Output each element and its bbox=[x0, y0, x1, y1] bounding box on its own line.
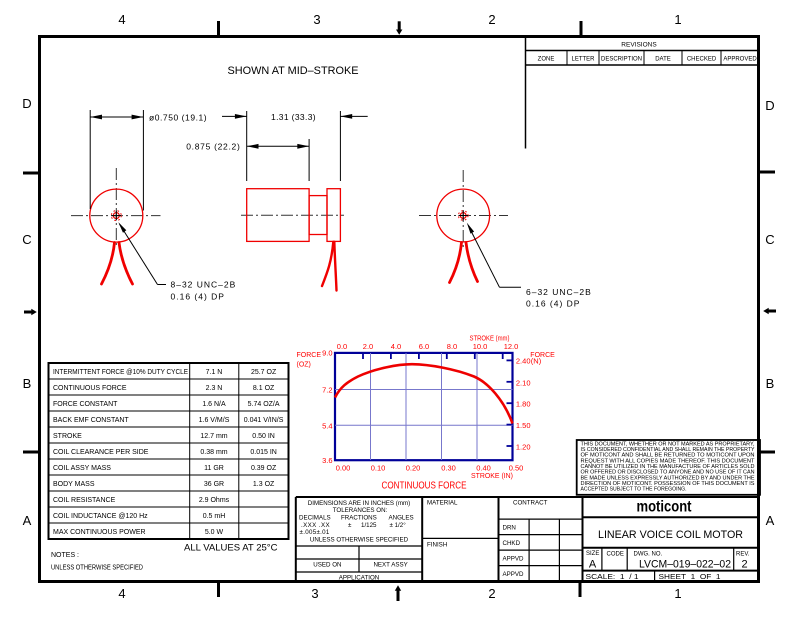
svg-text:STROKE: STROKE bbox=[53, 433, 82, 440]
svg-text:C: C bbox=[22, 232, 31, 247]
svg-text:1: 1 bbox=[674, 12, 681, 27]
svg-text:6–32 UNC–2B: 6–32 UNC–2B bbox=[526, 287, 592, 297]
svg-text:0.041 V/IN/S: 0.041 V/IN/S bbox=[244, 417, 284, 424]
svg-text:1: 1 bbox=[674, 586, 681, 601]
svg-text:8.1 OZ: 8.1 OZ bbox=[253, 385, 275, 392]
svg-text:CODE: CODE bbox=[607, 552, 624, 558]
svg-text:APPLICATION: APPLICATION bbox=[339, 574, 379, 581]
svg-text:SHEET 1 OF 1: SHEET 1 OF 1 bbox=[659, 574, 721, 581]
svg-text:DWG. NO.: DWG. NO. bbox=[634, 552, 663, 558]
svg-text:COIL RESISTANCE: COIL RESISTANCE bbox=[53, 497, 116, 504]
svg-text:12.0: 12.0 bbox=[504, 342, 519, 351]
svg-text:2.10: 2.10 bbox=[516, 378, 531, 387]
svg-text:CONTINUOUS FORCE: CONTINUOUS FORCE bbox=[53, 385, 127, 392]
svg-text:DECIMALS: DECIMALS bbox=[299, 515, 331, 522]
svg-text:2: 2 bbox=[741, 559, 747, 571]
svg-text:A: A bbox=[766, 513, 775, 528]
svg-text:12.7 mm: 12.7 mm bbox=[200, 433, 227, 440]
svg-text:USED ON: USED ON bbox=[313, 562, 341, 569]
svg-text:D: D bbox=[765, 98, 774, 113]
svg-text:1.80: 1.80 bbox=[516, 400, 531, 409]
svg-text:CHKD: CHKD bbox=[503, 540, 521, 547]
svg-text:5.74 OZ/A: 5.74 OZ/A bbox=[248, 401, 280, 408]
svg-text:ZONE: ZONE bbox=[538, 57, 555, 63]
svg-text:TOLERANCES ON:: TOLERANCES ON: bbox=[333, 507, 388, 514]
svg-text:CHECKED: CHECKED bbox=[687, 57, 717, 63]
svg-text:LINEAR VOICE COIL MOTOR: LINEAR VOICE COIL MOTOR bbox=[598, 529, 743, 541]
svg-text:DATE: DATE bbox=[655, 57, 671, 63]
svg-text:REVISIONS: REVISIONS bbox=[621, 42, 657, 49]
svg-text:DESCRIPTION: DESCRIPTION bbox=[601, 57, 642, 63]
svg-text:8–32 UNC–2B: 8–32 UNC–2B bbox=[171, 280, 237, 290]
svg-text:0.015 IN: 0.015 IN bbox=[250, 449, 276, 456]
svg-text:APPVD: APPVD bbox=[503, 556, 525, 563]
svg-text:BACK EMF CONSTANT: BACK EMF CONSTANT bbox=[53, 417, 129, 424]
svg-text:BODY MASS: BODY MASS bbox=[53, 481, 95, 488]
svg-text:1.6 N/A: 1.6 N/A bbox=[202, 401, 226, 408]
svg-text:UNLESS OTHERWISE SPECIFIED: UNLESS OTHERWISE SPECIFIED bbox=[51, 565, 143, 572]
svg-text:ø0.750 (19.1): ø0.750 (19.1) bbox=[149, 113, 207, 123]
svg-text:5.0 W: 5.0 W bbox=[205, 529, 224, 536]
svg-text:0.00: 0.00 bbox=[336, 464, 351, 473]
svg-text:±.005±.01: ±.005±.01 bbox=[300, 529, 330, 536]
svg-text:FORCE: FORCE bbox=[297, 352, 322, 359]
svg-text:D: D bbox=[22, 96, 31, 111]
svg-text:ALL VALUES AT 25°C: ALL VALUES AT 25°C bbox=[184, 543, 278, 554]
svg-text:.XXX .XX: .XXX .XX bbox=[301, 522, 330, 529]
svg-text:1.20: 1.20 bbox=[516, 443, 531, 452]
svg-text:0.16 (4) DP: 0.16 (4) DP bbox=[171, 292, 225, 302]
svg-text:STROKE (IN): STROKE (IN) bbox=[471, 471, 513, 480]
svg-text:0.38 mm: 0.38 mm bbox=[200, 449, 227, 456]
svg-text:(N): (N) bbox=[531, 357, 542, 366]
svg-text:COIL CLEARANCE PER SIDE: COIL CLEARANCE PER SIDE bbox=[53, 449, 149, 456]
svg-text:±: ± bbox=[348, 522, 352, 529]
svg-text:1/125: 1/125 bbox=[361, 522, 377, 529]
svg-text:1.6 V/M/S: 1.6 V/M/S bbox=[199, 417, 230, 424]
svg-text:LETTER: LETTER bbox=[571, 57, 595, 63]
svg-text:8.0: 8.0 bbox=[447, 342, 457, 351]
svg-text:0.875 (22.2): 0.875 (22.2) bbox=[186, 142, 240, 152]
svg-text:REV.: REV. bbox=[736, 552, 750, 558]
svg-text:SIZE: SIZE bbox=[586, 551, 599, 557]
svg-text:9.0: 9.0 bbox=[322, 349, 332, 358]
svg-text:MATERIAL: MATERIAL bbox=[427, 500, 458, 507]
svg-text:7.1 N: 7.1 N bbox=[206, 369, 223, 376]
svg-text:NOTES :: NOTES : bbox=[51, 552, 79, 559]
svg-text:0.0: 0.0 bbox=[337, 342, 347, 351]
svg-text:7.2: 7.2 bbox=[322, 386, 332, 395]
svg-text:25.7 OZ: 25.7 OZ bbox=[251, 369, 277, 376]
svg-text:2.0: 2.0 bbox=[363, 342, 373, 351]
svg-text:0.16 (4) DP: 0.16 (4) DP bbox=[526, 299, 580, 309]
svg-text:11 GR: 11 GR bbox=[204, 465, 224, 472]
svg-text:CONTINUOUS FORCE: CONTINUOUS FORCE bbox=[382, 480, 467, 492]
svg-text:2.9 Ohms: 2.9 Ohms bbox=[199, 497, 230, 504]
svg-text:LVCM–019–022–02: LVCM–019–022–02 bbox=[639, 559, 731, 571]
svg-text:SCALE: 1 / 1: SCALE: 1 / 1 bbox=[586, 574, 639, 581]
svg-text:A: A bbox=[23, 513, 32, 528]
svg-text:NEXT ASSY: NEXT ASSY bbox=[373, 562, 407, 569]
svg-text:5.4: 5.4 bbox=[322, 421, 332, 430]
svg-text:2.3 N: 2.3 N bbox=[206, 385, 223, 392]
svg-text:36 GR: 36 GR bbox=[204, 481, 224, 488]
svg-text:± 1/2°: ± 1/2° bbox=[390, 522, 407, 529]
svg-text:APPVD: APPVD bbox=[503, 571, 525, 578]
svg-text:3: 3 bbox=[311, 586, 318, 601]
svg-text:4: 4 bbox=[118, 586, 125, 601]
svg-text:MAX CONTINUOUS POWER: MAX CONTINUOUS POWER bbox=[53, 529, 146, 536]
svg-text:ACCEPTED SUBJECT TO THE FOREGO: ACCEPTED SUBJECT TO THE FOREGOING. bbox=[581, 487, 687, 493]
svg-text:2.40: 2.40 bbox=[516, 357, 531, 366]
svg-text:moticont: moticont bbox=[637, 499, 692, 516]
svg-text:1.50: 1.50 bbox=[516, 421, 531, 430]
svg-text:6.0: 6.0 bbox=[419, 342, 429, 351]
svg-text:10.0: 10.0 bbox=[473, 342, 488, 351]
svg-text:APPROVED: APPROVED bbox=[723, 57, 757, 63]
svg-text:1.31 (33.3): 1.31 (33.3) bbox=[271, 112, 316, 122]
svg-text:INTERMITTENT FORCE @10% DUTY C: INTERMITTENT FORCE @10% DUTY CYCLE bbox=[53, 369, 188, 376]
svg-text:COIL INDUCTANCE @120 Hz: COIL INDUCTANCE @120 Hz bbox=[53, 513, 148, 520]
svg-text:0.50 IN: 0.50 IN bbox=[252, 433, 275, 440]
svg-text:3: 3 bbox=[313, 12, 320, 27]
svg-text:2: 2 bbox=[488, 12, 495, 27]
svg-text:0.39 OZ: 0.39 OZ bbox=[251, 465, 277, 472]
svg-text:2: 2 bbox=[488, 586, 495, 601]
svg-text:COIL ASSY MASS: COIL ASSY MASS bbox=[53, 465, 111, 472]
svg-text:4.0: 4.0 bbox=[391, 342, 401, 351]
svg-text:ANGLES: ANGLES bbox=[389, 515, 414, 522]
svg-text:3.6: 3.6 bbox=[322, 456, 332, 465]
svg-text:DIMENSIONS ARE IN INCHES (mm): DIMENSIONS ARE IN INCHES (mm) bbox=[308, 500, 410, 507]
svg-text:FRACTIONS: FRACTIONS bbox=[341, 515, 377, 522]
svg-text:FORCE CONSTANT: FORCE CONSTANT bbox=[53, 401, 118, 408]
svg-text:0.20: 0.20 bbox=[406, 464, 421, 473]
svg-text:B: B bbox=[23, 376, 32, 391]
svg-text:UNLESS OTHERWISE SPECIFIED: UNLESS OTHERWISE SPECIFIED bbox=[310, 537, 409, 544]
svg-text:4: 4 bbox=[118, 12, 125, 27]
svg-text:C: C bbox=[765, 232, 774, 247]
svg-text:0.10: 0.10 bbox=[371, 464, 386, 473]
svg-text:0.30: 0.30 bbox=[441, 464, 456, 473]
svg-text:B: B bbox=[766, 376, 775, 391]
svg-text:DRN: DRN bbox=[503, 525, 516, 532]
svg-text:FINISH: FINISH bbox=[427, 542, 447, 549]
svg-text:0.5 mH: 0.5 mH bbox=[203, 513, 226, 520]
svg-text:(OZ): (OZ) bbox=[297, 361, 311, 368]
svg-text:SHOWN AT MID–STROKE: SHOWN AT MID–STROKE bbox=[228, 65, 359, 77]
svg-text:1.3 OZ: 1.3 OZ bbox=[253, 481, 275, 488]
svg-text:CONTRACT: CONTRACT bbox=[513, 500, 548, 507]
svg-text:STROKE (mm): STROKE (mm) bbox=[470, 333, 510, 342]
svg-text:A: A bbox=[589, 559, 597, 571]
